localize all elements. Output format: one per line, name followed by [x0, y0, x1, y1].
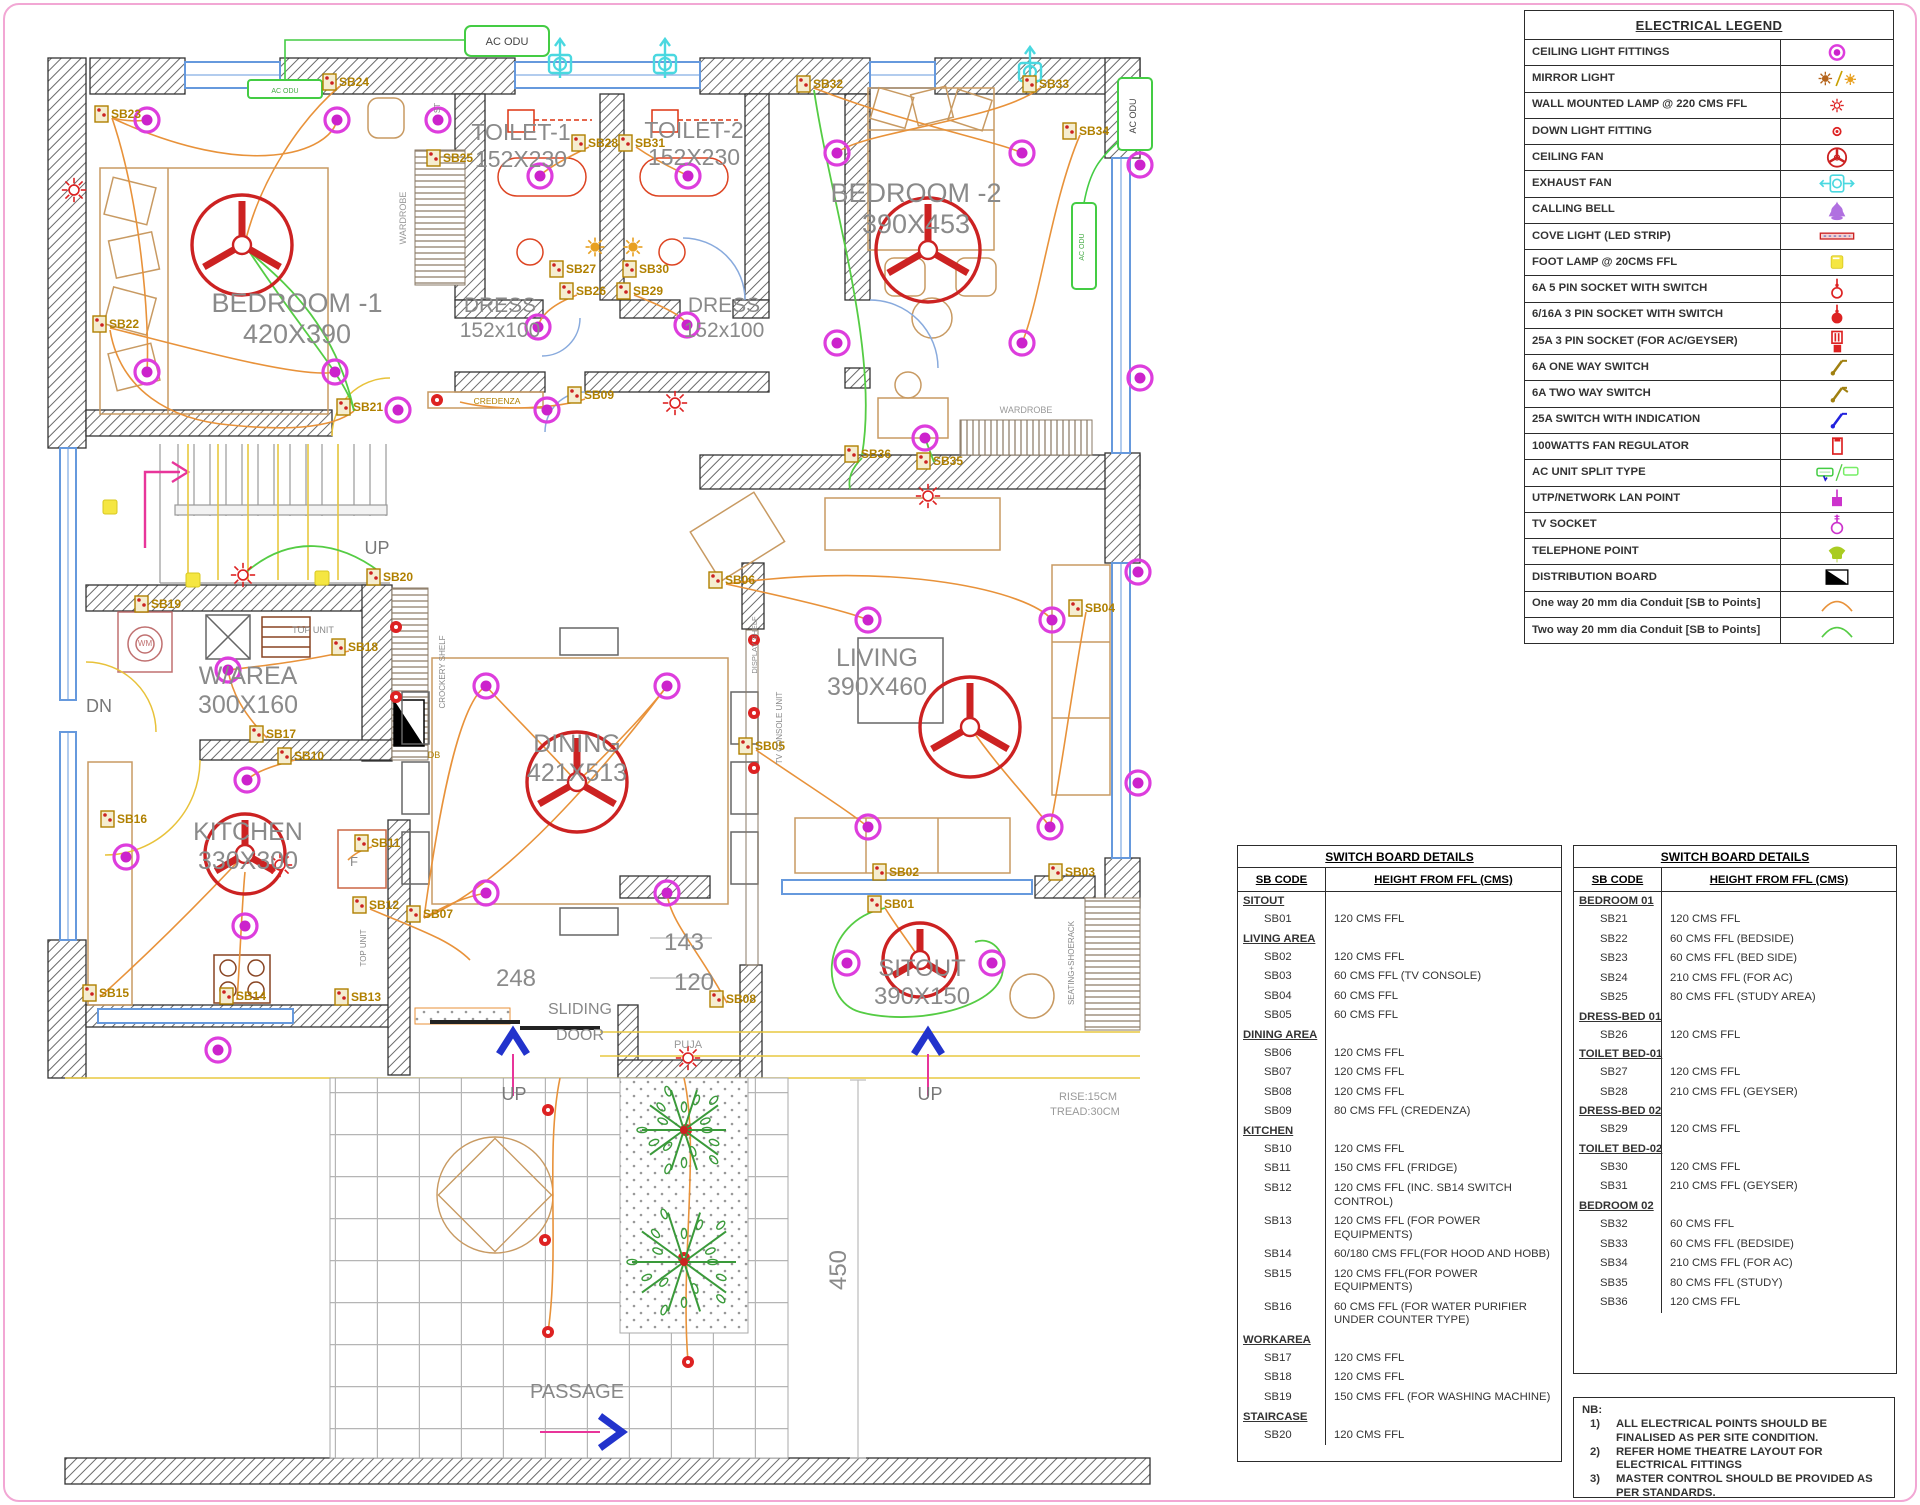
sb-group-name: TOILET BED-02 — [1574, 1140, 1662, 1158]
sb-point — [873, 864, 886, 880]
cove-light-icon — [1781, 224, 1893, 249]
note-item: 2)REFER HOME THEATRE LAYOUT FOR ELECTRIC… — [1582, 1446, 1886, 1474]
legend-row: UTP/NETWORK LAN POINT — [1525, 487, 1893, 513]
room-label: W/AREA300X160 — [198, 662, 298, 719]
svg-text:420X390: 420X390 — [243, 319, 351, 349]
switch-board-table-1: SWITCH BOARD DETAILSSB CODEHEIGHT FROM F… — [1237, 845, 1562, 1462]
svg-text:DRESS: DRESS — [688, 294, 760, 317]
lan-point-icon — [1781, 487, 1893, 512]
sb-label: SB34 — [1079, 124, 1109, 138]
fan-regulator-icon — [1781, 434, 1893, 459]
plan-text: AC ODU — [1079, 233, 1086, 260]
sb-group-name: TOILET BED-01 — [1574, 1045, 1662, 1063]
sb-code: SB16 — [1238, 1298, 1326, 1331]
sb-point — [220, 988, 233, 1004]
foot-lamp-icon — [103, 500, 117, 514]
svg-text:390X460: 390X460 — [827, 673, 927, 701]
sb-point — [709, 572, 722, 588]
legend-row-label: Two way 20 mm dia Conduit [SB to Points] — [1525, 618, 1781, 643]
plan-text: F — [350, 854, 358, 869]
conduit-1way-icon — [1781, 592, 1893, 617]
legend-row-label: TELEPHONE POINT — [1525, 539, 1781, 564]
conduit-2way-icon — [1781, 618, 1893, 643]
sb-label: SB27 — [566, 262, 596, 276]
svg-text:152X230: 152X230 — [475, 146, 567, 172]
sb-data-row: SB21120 CMS FFL — [1574, 910, 1896, 930]
sb-height: 120 CMS FFL — [1326, 1044, 1561, 1064]
ceiling-light-icon — [233, 914, 257, 938]
sb-data-row: SB27120 CMS FFL — [1574, 1063, 1896, 1083]
note-item: 3)MASTER CONTROL SHOULD BE PROVIDED AS P… — [1582, 1473, 1886, 1501]
sb-height: 80 CMS FFL (STUDY) — [1662, 1274, 1896, 1294]
sb-point — [917, 453, 930, 469]
switch-board-table-2: SWITCH BOARD DETAILSSB CODEHEIGHT FROM F… — [1573, 845, 1897, 1374]
sb-code: SB33 — [1574, 1235, 1662, 1255]
room-label: TOILET-2152X230 — [644, 117, 743, 170]
sb-height: 120 CMS FFL — [1662, 1158, 1896, 1178]
distribution-board-icon — [394, 700, 424, 746]
plan-text: 450 — [825, 1250, 852, 1290]
sb-data-row: SB3360 CMS FFL (BEDSIDE) — [1574, 1235, 1896, 1255]
sb-code: SB36 — [1574, 1293, 1662, 1313]
svg-text:KITCHEN: KITCHEN — [193, 818, 303, 846]
sb-height: 60 CMS FFL — [1662, 1215, 1896, 1235]
sb-height: 60 CMS FFL (BED SIDE) — [1662, 949, 1896, 969]
sb-height: 80 CMS FFL (STUDY AREA) — [1662, 988, 1896, 1008]
sb-code: SB30 — [1574, 1158, 1662, 1178]
ceiling-light-icon — [980, 951, 1004, 975]
sb-label: SB10 — [294, 749, 324, 763]
sb-point — [101, 811, 114, 827]
sb-label: SB11 — [371, 836, 401, 850]
svg-text:DRESS: DRESS — [464, 294, 536, 317]
legend-row: FOOT LAMP @ 20CMS FFL — [1525, 250, 1893, 276]
sb-code: SB22 — [1574, 930, 1662, 950]
sb-data-row: SB30120 CMS FFL — [1574, 1158, 1896, 1178]
ceiling-light-icon — [1781, 40, 1893, 65]
sb-point — [335, 989, 348, 1005]
sb-height: 120 CMS FFL — [1326, 1349, 1561, 1369]
switch-2way-icon — [1781, 381, 1893, 406]
svg-text:152X230: 152X230 — [648, 144, 740, 170]
sb-label: SB33 — [1039, 77, 1069, 91]
plan-text: CROCKERY SHELF — [438, 635, 447, 708]
sb-data-row: SB15120 CMS FFL(FOR POWER EQUIPMENTS) — [1238, 1265, 1561, 1298]
ceiling-light-icon — [474, 674, 498, 698]
sb-point — [337, 399, 350, 415]
sb-data-row: SB18120 CMS FFL — [1238, 1368, 1561, 1388]
sb-height: 120 CMS FFL — [1662, 1293, 1896, 1313]
sb-label: SB15 — [99, 986, 129, 1000]
sb-data-row: SB0360 CMS FFL (TV CONSOLE) — [1238, 967, 1561, 987]
wall-lamp-icon — [663, 391, 687, 415]
legend-row: 25A 3 PIN SOCKET (FOR AC/GEYSER) — [1525, 329, 1893, 355]
notes-heading: NB: — [1582, 1404, 1886, 1416]
sb-point — [550, 261, 563, 277]
sb-data-row: SB0980 CMS FFL (CREDENZA) — [1238, 1102, 1561, 1122]
sb-group-row: BEDROOM 01 — [1574, 892, 1896, 910]
sb-point — [845, 446, 858, 462]
sb-height: 120 CMS FFL — [1326, 910, 1561, 930]
sb-point — [868, 896, 881, 912]
mirror-light-icon — [1781, 66, 1893, 91]
legend-row: 100WATTS FAN REGULATOR — [1525, 434, 1893, 460]
socket-3pin-icon — [1781, 303, 1893, 328]
sb-group-row: DRESS-BED 01 — [1574, 1008, 1896, 1026]
svg-text:TOILET-1: TOILET-1 — [471, 119, 570, 145]
sb-data-row: SB11150 CMS FFL (FRIDGE) — [1238, 1159, 1561, 1179]
sb-height: 150 CMS FFL (FOR WASHING MACHINE) — [1326, 1388, 1561, 1408]
ceiling-light-icon — [835, 951, 859, 975]
sb-data-row: SB3260 CMS FFL — [1574, 1215, 1896, 1235]
plan-text: TV CONSOLE UNIT — [775, 692, 784, 765]
sb-data-row: SB08120 CMS FFL — [1238, 1083, 1561, 1103]
sb-data-row: SB2260 CMS FFL (BEDSIDE) — [1574, 930, 1896, 950]
svg-text:421X513: 421X513 — [527, 759, 627, 787]
down-light-icon — [748, 762, 760, 774]
sb-point — [353, 897, 366, 913]
sb-label: SB29 — [633, 284, 663, 298]
sb-group-name: DRESS-BED 02 — [1574, 1102, 1662, 1120]
legend-row: 6A TWO WAY SWITCH — [1525, 381, 1893, 407]
sb-label: SB02 — [889, 865, 919, 879]
legend-row-label: 6/16A 3 PIN SOCKET WITH SWITCH — [1525, 303, 1781, 328]
sb-data-row: SB07120 CMS FFL — [1238, 1063, 1561, 1083]
sb-data-row: SB3580 CMS FFL (STUDY) — [1574, 1274, 1896, 1294]
sb-height: 210 CMS FFL (GEYSER) — [1662, 1177, 1896, 1197]
down-light-icon — [682, 1356, 694, 1368]
svg-text:LIVING: LIVING — [836, 644, 918, 672]
sb-point — [568, 387, 581, 403]
sb-point — [560, 283, 573, 299]
tv-socket-icon — [1781, 513, 1893, 538]
sb-code: SB35 — [1574, 1274, 1662, 1294]
sb-data-row: SB01120 CMS FFL — [1238, 910, 1561, 930]
sb-label: SB03 — [1065, 865, 1095, 879]
sb-code: SB01 — [1238, 910, 1326, 930]
legend-row: Two way 20 mm dia Conduit [SB to Points] — [1525, 618, 1893, 643]
sb-code: SB04 — [1238, 987, 1326, 1007]
plan-text: TOP UNIT — [292, 625, 334, 635]
down-light-icon — [542, 1104, 554, 1116]
down-light-icon — [390, 691, 402, 703]
sb-group-row: TOILET BED-01 — [1574, 1045, 1896, 1063]
sb-height: 120 CMS FFL — [1662, 1120, 1896, 1140]
sb-code: SB34 — [1574, 1254, 1662, 1274]
plan-text: WARDROBE — [398, 192, 408, 245]
sb-table-title: SWITCH BOARD DETAILS — [1238, 846, 1561, 868]
legend-row-label: CEILING LIGHT FITTINGS — [1525, 40, 1781, 65]
sb-code: SB29 — [1574, 1120, 1662, 1140]
legend-row: EXHAUST FAN — [1525, 171, 1893, 197]
sb-label: SB20 — [383, 570, 413, 584]
sb-data-row: SB2360 CMS FFL (BED SIDE) — [1574, 949, 1896, 969]
room-label: DINING421X513 — [527, 730, 627, 787]
sb-height: 120 CMS FFL — [1662, 1063, 1896, 1083]
sb-data-row: SB24210 CMS FFL (FOR AC) — [1574, 969, 1896, 989]
ceiling-light-icon — [856, 608, 880, 632]
plan-text: ST — [433, 103, 442, 113]
ceiling-light-icon — [1010, 141, 1034, 165]
sb-label: SB32 — [813, 77, 843, 91]
down-light-icon — [431, 394, 443, 406]
ceiling-light-icon — [655, 674, 679, 698]
sb-height: 120 CMS FFL — [1326, 1083, 1561, 1103]
exhaust-fan-icon — [654, 39, 676, 78]
legend-row: CALLING BELL — [1525, 198, 1893, 224]
legend-row-label: 6A TWO WAY SWITCH — [1525, 381, 1781, 406]
plan-text: SLIDING — [548, 1001, 612, 1018]
sb-point — [407, 906, 420, 922]
telephone-point-icon — [1781, 539, 1893, 564]
legend-row: 25A SWITCH WITH INDICATION — [1525, 408, 1893, 434]
plan-text: DB — [428, 750, 441, 760]
plan-text: TOP UNIT — [359, 929, 368, 966]
sb-group-row: STAIRCASE — [1238, 1408, 1561, 1426]
sb-label: SB21 — [353, 400, 383, 414]
sb-group-name: STAIRCASE — [1238, 1408, 1326, 1426]
wall-lamp-icon — [62, 178, 86, 202]
legend-row: AC UNIT SPLIT TYPE — [1525, 460, 1893, 486]
sb-point — [427, 150, 440, 166]
svg-text:390X150: 390X150 — [874, 983, 970, 1010]
sb-data-row: SB12120 CMS FFL (INC. SB14 SWITCH CONTRO… — [1238, 1179, 1561, 1212]
sb-code: SB23 — [1574, 949, 1662, 969]
sb-point — [1023, 76, 1036, 92]
sb-group-row: KITCHEN — [1238, 1122, 1561, 1140]
sb-data-row: SB10120 CMS FFL — [1238, 1140, 1561, 1160]
legend-row-label: 100WATTS FAN REGULATOR — [1525, 434, 1781, 459]
sb-point — [278, 748, 291, 764]
svg-text:BEDROOM -2: BEDROOM -2 — [830, 178, 1001, 208]
plan-text: CREDENZA — [474, 396, 521, 406]
sb-code: SB27 — [1574, 1063, 1662, 1083]
sb-point — [250, 726, 263, 742]
ceiling-light-icon — [1010, 331, 1034, 355]
ac-unit-icon — [1781, 460, 1893, 485]
sb-code: SB07 — [1238, 1063, 1326, 1083]
plan-text: 120 — [674, 969, 714, 996]
legend-row: TELEPHONE POINT — [1525, 539, 1893, 565]
socket-5pin-icon — [1781, 276, 1893, 301]
sb-label: SB25 — [443, 151, 473, 165]
sb-group-name: BEDROOM 01 — [1574, 892, 1662, 910]
plan-text: PUJA — [674, 1039, 703, 1051]
sb-label: SB24 — [339, 75, 369, 89]
sb-label: SB08 — [726, 992, 756, 1006]
sb-code: SB25 — [1574, 988, 1662, 1008]
sb-code: SB02 — [1238, 948, 1326, 968]
foot-lamp-icon — [315, 571, 329, 585]
sb-label: SB23 — [111, 107, 141, 121]
room-label: LIVING390X460 — [827, 644, 927, 701]
sb-point — [332, 639, 345, 655]
sb-point — [367, 569, 380, 585]
legend-row: CEILING FAN — [1525, 145, 1893, 171]
sb-point — [617, 283, 630, 299]
legend-row-label: COVE LIGHT (LED STRIP) — [1525, 224, 1781, 249]
switch-25a-icon — [1781, 408, 1893, 433]
distribution-board-icon — [1781, 565, 1893, 590]
sb-point — [323, 74, 336, 90]
legend-row-label: 6A 5 PIN SOCKET WITH SWITCH — [1525, 276, 1781, 301]
legend-row: 6A 5 PIN SOCKET WITH SWITCH — [1525, 276, 1893, 302]
sb-data-row: SB34210 CMS FFL (FOR AC) — [1574, 1254, 1896, 1274]
sb-point — [1069, 600, 1082, 616]
legend-row-label: 25A 3 PIN SOCKET (FOR AC/GEYSER) — [1525, 329, 1781, 354]
legend-row-label: DISTRIBUTION BOARD — [1525, 565, 1781, 590]
plan-text: UP — [917, 1084, 942, 1104]
legend-row: MIRROR LIGHT — [1525, 66, 1893, 92]
room-label: BEDROOM -1420X390 — [211, 288, 382, 349]
foot-lamp-icon — [1781, 250, 1893, 275]
sb-height: 120 CMS FFL — [1326, 1426, 1561, 1446]
sb-point — [93, 316, 106, 332]
sb-label: SB04 — [1085, 601, 1115, 615]
sb-height: 120 CMS FFL (FOR POWER EQUIPMENTS) — [1326, 1212, 1561, 1245]
plan-text: AC ODU — [1128, 98, 1138, 133]
sb-label: SB26 — [576, 284, 606, 298]
svg-text:W/AREA: W/AREA — [199, 662, 298, 690]
exhaust-fan-icon — [549, 39, 571, 78]
sb-height: 60 CMS FFL (FOR WATER PURIFIER UNDER COU… — [1326, 1298, 1561, 1331]
sb-data-row: SB36120 CMS FFL — [1574, 1293, 1896, 1313]
sb-code: SB17 — [1238, 1349, 1326, 1369]
legend-row-label: CEILING FAN — [1525, 145, 1781, 170]
sb-point — [797, 76, 810, 92]
legend-row-label: MIRROR LIGHT — [1525, 66, 1781, 91]
notes-box: NB: 1)ALL ELECTRICAL POINTS SHOULD BE FI… — [1573, 1397, 1895, 1498]
exhaust-fan-icon — [1781, 171, 1893, 196]
plan-text: TREAD:30CM — [1050, 1106, 1120, 1118]
legend-row-label: EXHAUST FAN — [1525, 171, 1781, 196]
sb-height: 60 CMS FFL (TV CONSOLE) — [1326, 967, 1561, 987]
sb-group-name: DRESS-BED 01 — [1574, 1008, 1662, 1026]
sb-data-row: SB29120 CMS FFL — [1574, 1120, 1896, 1140]
sb-group-name: LIVING AREA — [1238, 930, 1326, 948]
socket-25a-icon — [1781, 329, 1893, 354]
legend-row-label: UTP/NETWORK LAN POINT — [1525, 487, 1781, 512]
legend-row: COVE LIGHT (LED STRIP) — [1525, 224, 1893, 250]
legend-row: DOWN LIGHT FITTING — [1525, 119, 1893, 145]
plan-text: PASSAGE — [530, 1381, 624, 1403]
sb-height: 60 CMS FFL — [1326, 987, 1561, 1007]
mirror-light-icon — [624, 238, 643, 257]
sb-group-name: SITOUT — [1238, 892, 1326, 910]
svg-text:152x100: 152x100 — [684, 319, 765, 342]
sb-table-header: SB CODEHEIGHT FROM FFL (CMS) — [1574, 868, 1896, 892]
sb-code: SB19 — [1238, 1388, 1326, 1408]
svg-text:SITOUT: SITOUT — [878, 955, 966, 982]
sb-height: 60/180 CMS FFL(FOR HOOD AND HOBB) — [1326, 1245, 1561, 1265]
sb-code: SB09 — [1238, 1102, 1326, 1122]
sb-data-row: SB17120 CMS FFL — [1238, 1349, 1561, 1369]
legend-row: CEILING LIGHT FITTINGS — [1525, 40, 1893, 66]
sb-label: SB14 — [236, 989, 266, 1003]
sb-code: SB10 — [1238, 1140, 1326, 1160]
sb-height: 60 CMS FFL (BEDSIDE) — [1662, 1235, 1896, 1255]
plan-text: WARDROBE — [1000, 405, 1053, 415]
sb-code: SB11 — [1238, 1159, 1326, 1179]
plan-text: SEATING+SHOERACK — [1067, 920, 1076, 1005]
svg-text:DINING: DINING — [533, 730, 621, 758]
legend-row: 6/16A 3 PIN SOCKET WITH SWITCH — [1525, 303, 1893, 329]
legend-row-label: CALLING BELL — [1525, 198, 1781, 223]
legend-row-label: FOOT LAMP @ 20CMS FFL — [1525, 250, 1781, 275]
foot-lamp-icon — [186, 573, 200, 587]
sb-code: SB03 — [1238, 967, 1326, 987]
sb-code: SB28 — [1574, 1083, 1662, 1103]
sb-point — [135, 596, 148, 612]
sb-height: 120 CMS FFL — [1326, 948, 1561, 968]
sb-data-row: SB0460 CMS FFL — [1238, 987, 1561, 1007]
sb-data-row: SB2580 CMS FFL (STUDY AREA) — [1574, 988, 1896, 1008]
sb-code: SB32 — [1574, 1215, 1662, 1235]
legend-row-label: 6A ONE WAY SWITCH — [1525, 355, 1781, 380]
plan-text: DOOR — [556, 1027, 604, 1044]
sb-code: SB14 — [1238, 1245, 1326, 1265]
sb-point — [83, 985, 96, 1001]
svg-text:330X300: 330X300 — [198, 847, 298, 875]
sb-point — [619, 135, 632, 151]
sb-point — [1049, 864, 1062, 880]
sb-height: 120 CMS FFL — [1662, 1026, 1896, 1046]
ceiling-light-icon — [1038, 815, 1062, 839]
sb-group-name: BEDROOM 02 — [1574, 1197, 1662, 1215]
sb-height: 210 CMS FFL (FOR AC) — [1662, 969, 1896, 989]
sb-code: SB21 — [1574, 910, 1662, 930]
svg-text:300X160: 300X160 — [198, 691, 298, 719]
sb-data-row: SB1660 CMS FFL (FOR WATER PURIFIER UNDER… — [1238, 1298, 1561, 1331]
ceiling-fan-icon — [192, 195, 292, 295]
sb-point — [355, 835, 368, 851]
sb-group-row: DRESS-BED 02 — [1574, 1102, 1896, 1120]
sb-code: SB06 — [1238, 1044, 1326, 1064]
legend-row-label: One way 20 mm dia Conduit [SB to Points] — [1525, 592, 1781, 617]
down-light-icon — [1781, 119, 1893, 144]
room-label: KITCHEN330X300 — [193, 818, 303, 875]
sb-height: 60 CMS FFL — [1326, 1006, 1561, 1026]
sb-height: 60 CMS FFL (BEDSIDE) — [1662, 930, 1896, 950]
switch-1way-icon — [1781, 355, 1893, 380]
ceiling-light-icon — [206, 1038, 230, 1062]
svg-text:152x100: 152x100 — [460, 319, 541, 342]
sb-data-row: SB13120 CMS FFL (FOR POWER EQUIPMENTS) — [1238, 1212, 1561, 1245]
sb-data-row: SB28210 CMS FFL (GEYSER) — [1574, 1083, 1896, 1103]
sb-group-row: SITOUT — [1238, 892, 1561, 910]
sb-label: SB18 — [348, 640, 378, 654]
legend-row-label: TV SOCKET — [1525, 513, 1781, 538]
sb-group-row: DINING AREA — [1238, 1026, 1561, 1044]
ceiling-light-icon — [825, 331, 849, 355]
sb-code-header: SB CODE — [1238, 868, 1326, 891]
sb-code: SB08 — [1238, 1083, 1326, 1103]
plan-text: WM — [138, 639, 153, 648]
sb-code: SB05 — [1238, 1006, 1326, 1026]
plan-text: RISE:15CM — [1059, 1091, 1117, 1103]
ceiling-light-icon — [114, 845, 138, 869]
sb-data-row: SB19150 CMS FFL (FOR WASHING MACHINE) — [1238, 1388, 1561, 1408]
sb-height-header: HEIGHT FROM FFL (CMS) — [1326, 868, 1561, 891]
plan-text: DN — [86, 696, 112, 716]
sb-code: SB15 — [1238, 1265, 1326, 1298]
legend-row-label: WALL MOUNTED LAMP @ 220 CMS FFL — [1525, 93, 1781, 118]
sb-code: SB13 — [1238, 1212, 1326, 1245]
ceiling-light-icon — [235, 768, 259, 792]
sb-code: SB24 — [1574, 969, 1662, 989]
svg-text:BEDROOM -1: BEDROOM -1 — [211, 288, 382, 318]
ceiling-fan-icon — [1781, 145, 1893, 170]
